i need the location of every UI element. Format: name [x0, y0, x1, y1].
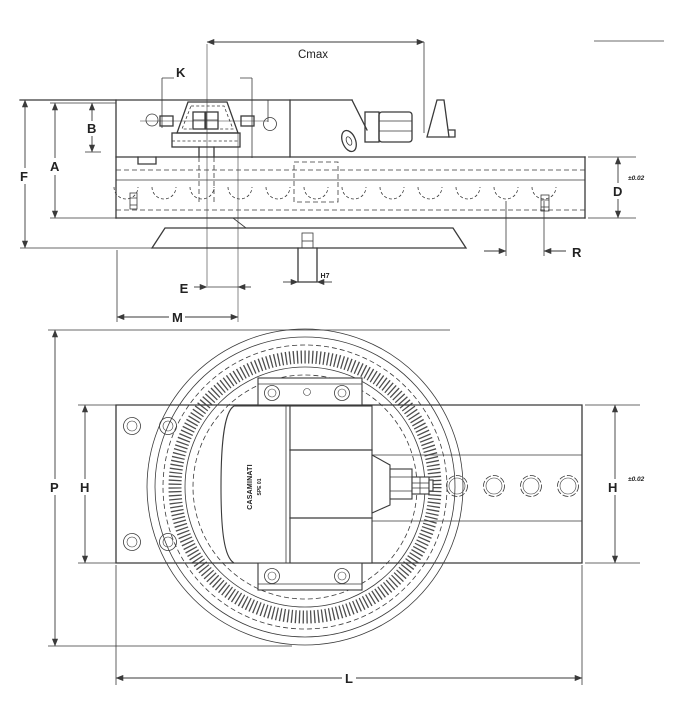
dim-label-p: P	[50, 480, 59, 495]
dim-label-b: B	[87, 121, 96, 136]
dim-label-m: M	[172, 310, 183, 325]
vise-body-outline	[20, 100, 585, 228]
dim-Cmax: Cmax	[207, 42, 424, 133]
tolerance-d: ±0.02	[628, 175, 645, 182]
dim-D: D ±0.02	[588, 157, 645, 218]
screw-drive	[294, 100, 412, 202]
work-stop-wedge	[427, 100, 455, 137]
jaw-hole-left	[146, 114, 158, 126]
t-slot-scallops	[114, 187, 556, 199]
tolerance-h: ±0.02	[628, 476, 645, 483]
clamp-strip-bottom	[258, 563, 362, 590]
brand-line1: CASAMINATI	[247, 464, 254, 509]
dim-label-a: A	[50, 159, 60, 174]
vise-technical-drawing: F A B K Cmax	[0, 0, 674, 709]
dim-M: M	[117, 250, 238, 325]
dim-label-h-left: H	[80, 480, 89, 495]
movable-jaw	[140, 102, 277, 204]
clamp-strip-top	[258, 378, 362, 405]
technical-drawing-page: F A B K Cmax	[0, 0, 674, 709]
dim-label-l: L	[345, 671, 353, 686]
slot-key-right	[541, 195, 549, 211]
jaw-hole-right	[264, 118, 277, 131]
rail-holes	[447, 476, 579, 497]
dim-label-f: F	[20, 169, 28, 184]
dim-label-e: E	[180, 281, 189, 296]
centering-spigot	[298, 233, 317, 282]
dim-label-h-right: H	[608, 480, 617, 495]
dim-A: A	[47, 103, 116, 218]
jaw-slide-plan	[290, 406, 433, 563]
dim-label-h7: H7	[321, 273, 330, 280]
dim-E: E	[180, 281, 251, 296]
dim-label-cmax: Cmax	[298, 49, 328, 61]
side-view: F A B K Cmax	[18, 41, 664, 325]
brand-line2: SPE 01	[257, 478, 263, 495]
plan-view: CASAMINATI SPE 01 P	[47, 329, 645, 686]
vise-body-plan: CASAMINATI SPE 01	[221, 406, 290, 563]
slot-key-left	[130, 193, 137, 209]
dim-label-d: D	[613, 184, 622, 199]
dim-B: B	[85, 103, 101, 152]
dim-label-k: K	[176, 65, 186, 80]
dim-H-left: H	[77, 405, 116, 563]
dim-H7: H7	[283, 273, 332, 282]
dim-H-right: H ±0.02	[585, 405, 645, 563]
base-plate	[152, 228, 466, 248]
dim-label-r: R	[572, 245, 582, 260]
